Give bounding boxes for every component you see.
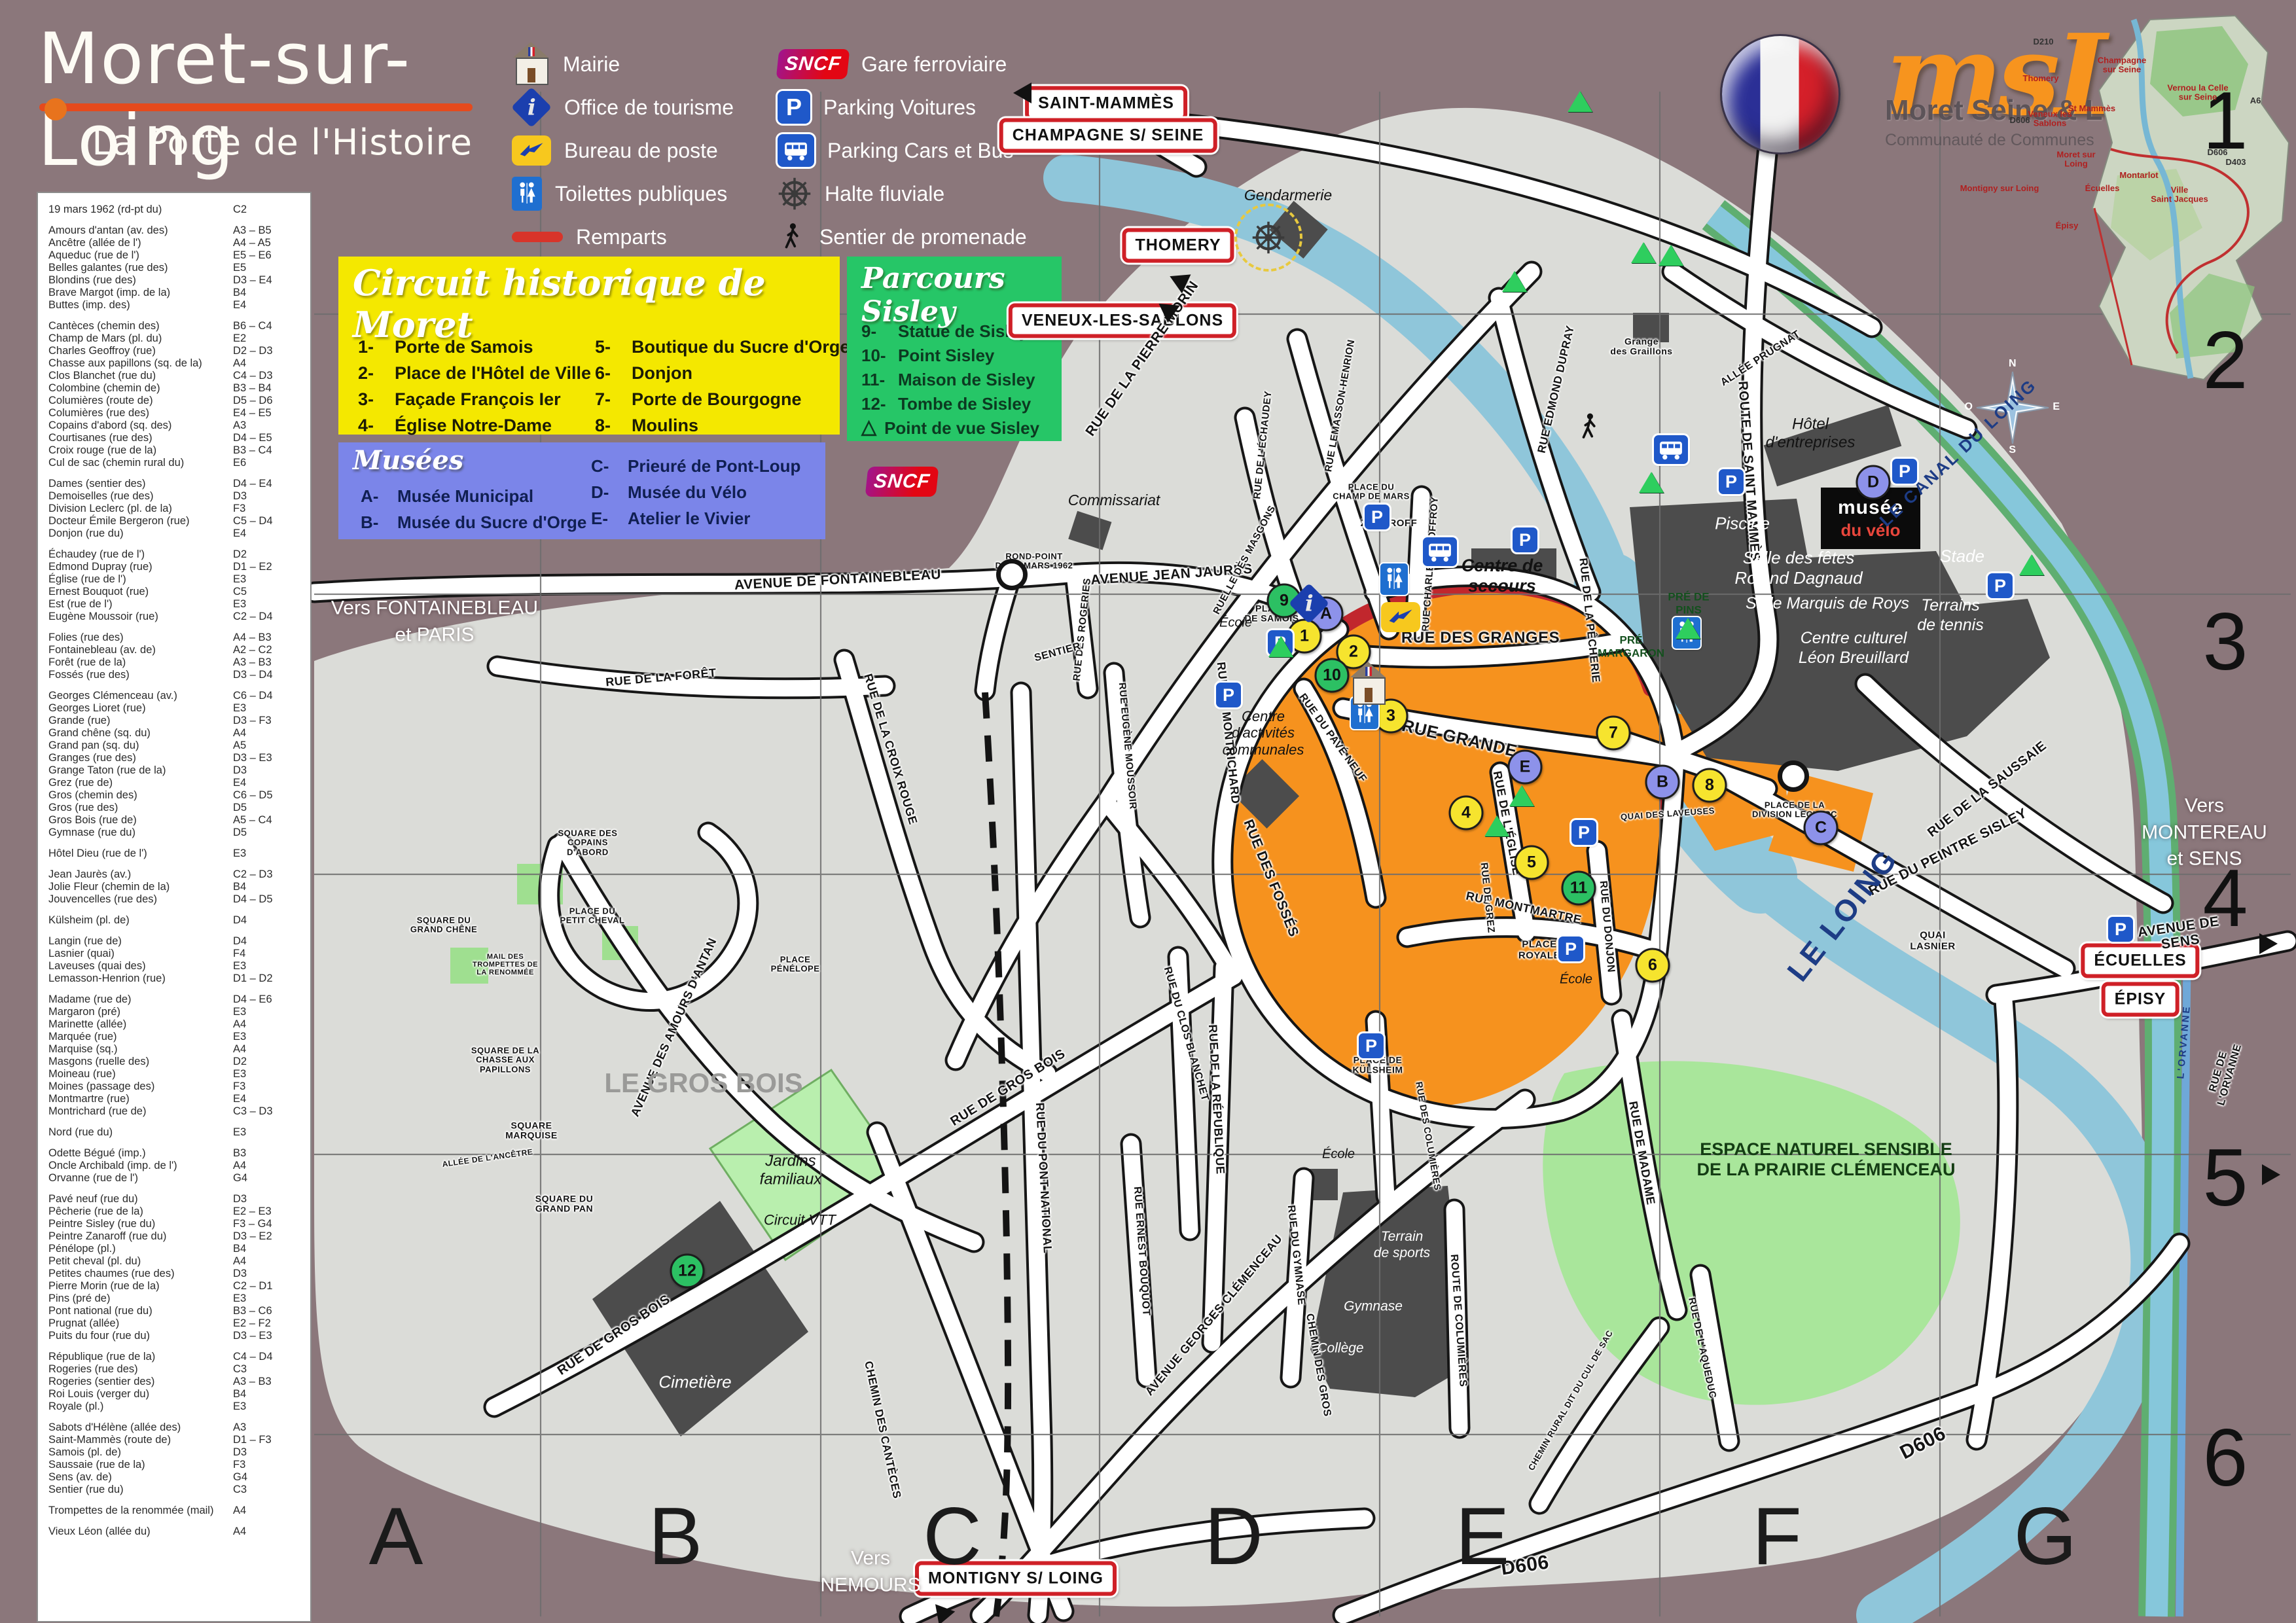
parking-icon: P	[1892, 459, 1917, 484]
halte-fluviale-ring	[1234, 204, 1302, 272]
index-row: Rogeries (sentier des)A3 – B3	[48, 1376, 304, 1388]
street-name: Edmond Dupray (rue)	[48, 561, 233, 573]
poi-marker-10: 10	[1315, 658, 1350, 693]
inset-label: D210	[2033, 37, 2053, 46]
street-grid-ref: C3	[233, 1484, 304, 1496]
index-row: Roi Louis (verger du)B4	[48, 1388, 304, 1400]
street-name: Grand chêne (sq. du)	[48, 727, 233, 740]
parking-bus-icon	[1654, 435, 1688, 464]
street-grid-ref: D1 – F3	[233, 1434, 304, 1446]
poi-number: E-	[591, 505, 620, 531]
street-name: Jean Jaurès (av.)	[48, 868, 233, 881]
street-grid-ref: D3	[233, 764, 304, 777]
poi-number: 7-	[595, 386, 624, 412]
musees-items-left: A-Musée MunicipalB-Musée du Sucre d'Orge	[361, 483, 586, 535]
street-name: Gros (chemin des)	[48, 789, 233, 802]
index-row: Marinette (allée)A4	[48, 1018, 304, 1031]
legend-item: PParking Voitures	[778, 90, 1027, 124]
index-row: Lasnier (quai)F4	[48, 948, 304, 960]
legend-item-label: Office de tourisme	[564, 96, 734, 120]
index-row: Nord (rue du)E3	[48, 1126, 304, 1139]
street-name: Sentier (rue du)	[48, 1484, 233, 1496]
halte-icon	[778, 177, 812, 211]
street-grid-ref: A4	[233, 357, 304, 370]
street-grid-ref: C5 – D4	[233, 515, 304, 527]
circuit-items-left: 1-Porte de Samois2-Place de l'Hôtel de V…	[358, 334, 591, 438]
index-row: 19 mars 1962 (rd-pt du)C2	[48, 204, 304, 216]
street-grid-ref: A4	[233, 1505, 304, 1517]
street-name: Roi Louis (verger du)	[48, 1388, 233, 1400]
index-row: Courtisanes (rue des)D4 – E5	[48, 432, 304, 444]
poi-label: Point Sisley	[898, 344, 994, 368]
street-name: Laveuses (quai des)	[48, 960, 233, 972]
index-row: Pénélope (pl.)B4	[48, 1243, 304, 1255]
poi-number: B-	[361, 509, 389, 535]
legend-item: Bureau de poste	[512, 134, 734, 168]
street-grid-ref: E2	[233, 332, 304, 345]
street-grid-ref: A4	[233, 1018, 304, 1031]
street-name: Peintre Sisley (rue du)	[48, 1218, 233, 1230]
street-grid-ref: G4	[233, 1471, 304, 1484]
index-row: Copains d'abord (sq. des)A3	[48, 419, 304, 432]
street-grid-ref: D3	[233, 490, 304, 503]
index-row: Sentier (rue du)C3	[48, 1484, 304, 1496]
street-name: Chasse aux papillons (sq. de la)	[48, 357, 233, 370]
sisley-viewpoint-icon	[1631, 242, 1656, 263]
index-row: Puits du four (rue du)D3 – E3	[48, 1330, 304, 1342]
circuit-box-title: Circuit historique de Moret	[338, 257, 840, 346]
index-row: Pierre Morin (rue de la)C2 – D1	[48, 1280, 304, 1293]
street-grid-ref: A3 – B5	[233, 224, 304, 237]
town-sign: CHAMPAGNE S/ SEINE	[999, 118, 1217, 153]
index-row: Champ de Mars (pl. du)E2	[48, 332, 304, 345]
index-row: Belles galantes (rue des)E5	[48, 262, 304, 274]
index-row: Rogeries (rue des)C3	[48, 1363, 304, 1376]
street-name: Marquée (rue)	[48, 1031, 233, 1043]
legend-column-1: MairieiOffice de tourismeBureau de poste…	[512, 47, 734, 254]
index-row: Cul de sac (chemin rural du)E6	[48, 457, 304, 469]
street-grid-ref: A4 – B3	[233, 632, 304, 644]
street-label: MAIL DES TROMPETTES DE LA RENOMMÉE	[473, 953, 538, 976]
poi-number: 11-	[861, 368, 890, 392]
street-name: Colombine (chemin de)	[48, 382, 233, 395]
index-row: Aqueduc (rue de l')E5 – E6	[48, 249, 304, 262]
street-grid-ref: E3	[233, 1006, 304, 1018]
index-row: Petit cheval (pl. du)A4	[48, 1255, 304, 1268]
street-name: Margaron (pré)	[48, 1006, 233, 1018]
index-row: Charles Geoffroy (rue)D2 – D3	[48, 345, 304, 357]
place-label: Gendarmerie	[1244, 187, 1332, 204]
street-name: 19 mars 1962 (rd-pt du)	[48, 204, 233, 216]
poi-label: Porte de Samois	[395, 334, 533, 360]
index-row: Moineau (rue)E3	[48, 1068, 304, 1080]
legend-column-2: SNCFGare ferroviairePParking VoituresPar…	[778, 47, 1027, 254]
grid-letter-E: E	[1456, 1490, 1510, 1583]
parking-icon: P	[1571, 820, 1596, 845]
street-grid-ref: C2 – D3	[233, 868, 304, 881]
index-row: Grange Taton (rue de la)D3	[48, 764, 304, 777]
sisley-viewpoint-icon	[1639, 472, 1664, 493]
index-row: Hôtel Dieu (rue de l')E3	[48, 847, 304, 860]
street-label: SQUARE DU GRAND PAN	[535, 1194, 594, 1215]
inset-label: D606	[2009, 116, 2030, 125]
street-name: Pavé neuf (rue du)	[48, 1193, 233, 1205]
street-label: QUAI LASNIER	[1910, 931, 1955, 952]
post-icon	[512, 135, 551, 166]
street-grid-ref: E4	[233, 527, 304, 540]
index-row: Gros (rue des)D5	[48, 802, 304, 814]
street-name: Nord (rue du)	[48, 1126, 233, 1139]
street-name: Madame (rue de)	[48, 993, 233, 1006]
town-sign: ÉPISY	[2102, 982, 2179, 1017]
map-mairie-icon	[1349, 666, 1387, 702]
parking-icon: P	[1513, 527, 1537, 552]
street-name: Fontainebleau (av. de)	[48, 644, 233, 656]
street-label: SQUARE MARQUISE	[505, 1121, 557, 1141]
index-row: Division Leclerc (pl. de la)F3	[48, 503, 304, 515]
index-group: Madame (rue de)D4 – E6Margaron (pré)E3Ma…	[48, 993, 304, 1118]
inset-label: D403	[2225, 158, 2246, 167]
street-grid-ref: F4	[233, 948, 304, 960]
index-row: Trompettes de la renommée (mail)A4	[48, 1505, 304, 1517]
facility-label: Piscine	[1715, 513, 1770, 533]
index-group: Vieux Léon (allée du)A4	[48, 1525, 304, 1538]
street-name: Grand pan (sq. du)	[48, 740, 233, 752]
poi-marker-4: 4	[1449, 796, 1484, 830]
street-name: Pins (pré de)	[48, 1293, 233, 1305]
poi-list-item: D-Musée du Vélo	[591, 479, 800, 505]
street-grid-ref: E2 – F2	[233, 1317, 304, 1330]
index-row: Eugène Moussoir (rue)C2 – D4	[48, 611, 304, 623]
street-grid-ref: D2 – D3	[233, 345, 304, 357]
poi-number: 3-	[358, 386, 387, 412]
moret-sur-loing-map-poster: Moret-sur-Loing La Porte de l'Histoire M…	[0, 0, 2296, 1623]
direction-label: Vers FONTAINEBLEAU et PARIS	[331, 596, 538, 649]
street-grid-ref: D3 – E4	[233, 274, 304, 287]
parking-icon: P	[1988, 573, 2013, 598]
index-row: Docteur Émile Bergeron (rue)C5 – D4	[48, 515, 304, 527]
index-group: Amours d'antan (av. des)A3 – B5Ancêtre (…	[48, 224, 304, 312]
facility-label: Salle Marquis de Roys	[1746, 594, 1909, 613]
street-grid-ref: D3	[233, 1193, 304, 1205]
street-name: Charles Geoffroy (rue)	[48, 345, 233, 357]
street-grid-ref: D3 – E2	[233, 1230, 304, 1243]
poi-label: Porte de Bourgogne	[632, 386, 802, 412]
street-name: Granges (rue des)	[48, 752, 233, 764]
street-grid-ref: E4	[233, 777, 304, 789]
street-name: Aqueduc (rue de l')	[48, 249, 233, 262]
french-flag-icon	[1720, 34, 1840, 154]
grid-letter-G: G	[2014, 1490, 2077, 1583]
poi-number: 10-	[861, 344, 890, 368]
parking-icon: P	[1359, 1033, 1384, 1058]
street-grid-ref: E3	[233, 598, 304, 611]
poi-list-item: 1-Porte de Samois	[358, 334, 591, 360]
street-name: Langin (rue de)	[48, 935, 233, 948]
poi-number: 1-	[358, 334, 387, 360]
poi-label: Façade François Ier	[395, 386, 561, 412]
poi-label: Moulins	[632, 412, 698, 438]
street-label: SQUARE DE LA CHASSE AUX PAPILLONS	[471, 1046, 539, 1075]
legend-item: iOffice de tourisme	[512, 90, 734, 124]
index-row: Dames (sentier des)D4 – E4	[48, 478, 304, 490]
index-row: Donjon (rue du)E4	[48, 527, 304, 540]
street-name: Belles galantes (rue des)	[48, 262, 233, 274]
toilets-icon	[1380, 563, 1408, 595]
street-grid-ref: A3 – B3	[233, 656, 304, 669]
street-name: Pénélope (pl.)	[48, 1243, 233, 1255]
poi-number: 4-	[358, 412, 387, 438]
index-row: Petites chaumes (rue des)D3	[48, 1268, 304, 1280]
legend-item-label: Mairie	[563, 52, 620, 77]
town-sign: VENEUX-LES-SABLONS	[1009, 304, 1236, 338]
street-name: Division Leclerc (pl. de la)	[48, 503, 233, 515]
index-row: Columières (route de)D5 – D6	[48, 395, 304, 407]
index-group: Trompettes de la renommée (mail)A4	[48, 1505, 304, 1517]
viewpoint-triangle-icon: △	[861, 416, 876, 440]
street-name: Amours d'antan (av. des)	[48, 224, 233, 237]
index-row: Vieux Léon (allée du)A4	[48, 1525, 304, 1538]
poi-label: Donjon	[632, 360, 692, 386]
mairie-icon	[1349, 666, 1387, 702]
place-label: École	[1560, 972, 1592, 988]
inset-label: Vernou la Celle sur Seine	[2167, 84, 2228, 103]
velo-logo-line2: du vélo	[1821, 520, 1920, 541]
street-grid-ref: D4	[233, 914, 304, 927]
street-grid-ref: C5	[233, 586, 304, 598]
street-grid-ref: D3 – F3	[233, 715, 304, 727]
walker-icon	[778, 219, 806, 255]
index-row: Saussaie (rue de la)F3	[48, 1459, 304, 1471]
tourism-icon: i	[1289, 583, 1329, 624]
street-name: Cantèces (chemin des)	[48, 320, 233, 332]
street-grid-ref: E3	[233, 1126, 304, 1139]
street-grid-ref: A2 – C2	[233, 644, 304, 656]
poi-marker-B: B	[1645, 765, 1680, 800]
index-row: Fontainebleau (av. de)A2 – C2	[48, 644, 304, 656]
place-label: Hôtel d'entreprises	[1766, 415, 1856, 451]
index-group: Jean Jaurès (av.)C2 – D3Jolie Fleur (che…	[48, 868, 304, 906]
direction-arrow-icon	[2259, 933, 2278, 954]
parking-icon: P	[778, 91, 810, 124]
index-row: Granges (rue des)D3 – E3	[48, 752, 304, 764]
poi-marker-11: 11	[1562, 871, 1596, 906]
poi-marker-6: 6	[1636, 948, 1670, 983]
index-row: Grande (rue)D3 – F3	[48, 715, 304, 727]
street-name: Buttes (imp. des)	[48, 299, 233, 312]
street-name: Sabots d'Hélène (allée des)	[48, 1421, 233, 1434]
legend-item-label: Remparts	[576, 225, 667, 249]
poi-list-item: 2-Place de l'Hôtel de Ville	[358, 360, 591, 386]
index-row: Échaudey (rue de l')D2	[48, 548, 304, 561]
street-name: Croix rouge (rue de la)	[48, 444, 233, 457]
street-grid-ref: E6	[233, 457, 304, 469]
sncf-icon: SNCF	[776, 49, 850, 79]
index-group: Langin (rue de)D4Lasnier (quai)F4Laveuse…	[48, 935, 304, 985]
poi-marker-5: 5	[1515, 846, 1549, 880]
place-label: Circuit VTT	[764, 1211, 836, 1228]
street-name: Odette Bégué (imp.)	[48, 1147, 233, 1160]
street-name: Columières (route de)	[48, 395, 233, 407]
street-label: PLACE PÉNÉLOPE	[771, 955, 820, 974]
place-label: Centre d'activités communales	[1223, 708, 1304, 758]
street-grid-ref: A4	[233, 1043, 304, 1056]
street-name: Marinette (allée)	[48, 1018, 233, 1031]
index-row: Odette Bégué (imp.)B3	[48, 1147, 304, 1160]
street-name: Montmartre (rue)	[48, 1093, 233, 1105]
street-name: Georges Lioret (rue)	[48, 702, 233, 715]
street-grid-ref: F3	[233, 1459, 304, 1471]
legend-item-label: Toilettes publiques	[555, 182, 727, 206]
street-name: Marquise (sq.)	[48, 1043, 233, 1056]
street-name: Clos Blanchet (rue du)	[48, 370, 233, 382]
street-grid-ref: E3	[233, 1293, 304, 1305]
street-name: Gros Bois (rue de)	[48, 814, 233, 827]
street-grid-ref: D3	[233, 1446, 304, 1459]
legend-item: Toilettes publiques	[512, 177, 734, 211]
street-name: Gymnase (rue du)	[48, 827, 233, 839]
street-grid-ref: A5 – C4	[233, 814, 304, 827]
poi-number: 2-	[358, 360, 387, 386]
index-row: Colombine (chemin de)B3 – B4	[48, 382, 304, 395]
inset-label: Ville Saint Jacques	[2151, 186, 2208, 205]
street-grid-ref: C2 – D4	[233, 611, 304, 623]
index-row: Georges Clémenceau (av.)C6 – D4	[48, 690, 304, 702]
roundabout	[1778, 760, 1809, 792]
grid-letter-D: D	[1204, 1490, 1263, 1583]
facility-label: Centre culturel Léon Breuillard	[1799, 628, 1909, 668]
street-name: Samois (pl. de)	[48, 1446, 233, 1459]
street-name: Lemasson-Henrion (rue)	[48, 972, 233, 985]
index-row: Ernest Bouquot (rue)C5	[48, 586, 304, 598]
street-name: Rogeries (sentier des)	[48, 1376, 233, 1388]
street-grid-ref: C6 – D4	[233, 690, 304, 702]
circuit-historique-box: Circuit historique de Moret 1-Porte de S…	[338, 257, 840, 435]
street-grid-ref: D5	[233, 827, 304, 839]
street-name: Hôtel Dieu (rue de l')	[48, 847, 233, 860]
street-name: Peintre Zanaroff (rue du)	[48, 1230, 233, 1243]
map-tourism-icon: i	[1289, 586, 1329, 620]
index-row: Grand pan (sq. du)A5	[48, 740, 304, 752]
street-name: Cul de sac (chemin rural du)	[48, 457, 233, 469]
poi-list-item: 12-Tombe de Sisley	[861, 392, 1035, 416]
poi-list-item: 3-Façade François Ier	[358, 386, 591, 412]
index-group: Folies (rue des)A4 – B3Fontainebleau (av…	[48, 632, 304, 681]
index-row: Gros (chemin des)C6 – D5	[48, 789, 304, 802]
street-grid-ref: D3 – E3	[233, 752, 304, 764]
poi-label: Église Notre-Dame	[395, 412, 552, 438]
street-name: Trompettes de la renommée (mail)	[48, 1505, 233, 1517]
index-row: Amours d'antan (av. des)A3 – B5	[48, 224, 304, 237]
legend-item-label: Halte fluviale	[825, 182, 944, 206]
musees-items-right: C-Prieuré de Pont-LoupD-Musée du VéloE-A…	[591, 453, 800, 531]
street-name: Ernest Bouquot (rue)	[48, 586, 233, 598]
poi-list-item: 6-Donjon	[595, 360, 850, 386]
sncf-icon: SNCF	[865, 467, 939, 497]
street-grid-ref: B3	[233, 1147, 304, 1160]
street-name: Donjon (rue du)	[48, 527, 233, 540]
inset-label: D606	[2207, 148, 2227, 157]
street-grid-ref: B4	[233, 287, 304, 299]
street-grid-ref: E4	[233, 299, 304, 312]
poi-marker-8: 8	[1693, 768, 1727, 803]
street-name: Petites chaumes (rue des)	[48, 1268, 233, 1280]
street-grid-ref: D4 – D5	[233, 893, 304, 906]
street-name: Gros (rue des)	[48, 802, 233, 814]
poi-marker-12: 12	[670, 1254, 705, 1289]
street-grid-ref: D4 – E5	[233, 432, 304, 444]
index-row: Jolie Fleur (chemin de la)B4	[48, 881, 304, 893]
index-row: Edmond Dupray (rue)D1 – E2	[48, 561, 304, 573]
street-grid-ref: C4 – D4	[233, 1351, 304, 1363]
inset-label: Épisy	[2056, 221, 2079, 230]
legend-item: Halte fluviale	[778, 177, 1027, 211]
poi-list-item: C-Prieuré de Pont-Loup	[591, 453, 800, 479]
place-label: Jardins familiaux	[760, 1152, 822, 1188]
street-grid-ref: A5	[233, 740, 304, 752]
street-grid-ref: E3	[233, 573, 304, 586]
index-row: Külsheim (pl. de)D4	[48, 914, 304, 927]
street-name: Rogeries (rue des)	[48, 1363, 233, 1376]
index-row: Fossés (rue des)D3 – D4	[48, 669, 304, 681]
street-name: Lasnier (quai)	[48, 948, 233, 960]
area-label: ESPACE NATUREL SENSIBLE DE LA PRAIRIE CL…	[1696, 1139, 1955, 1180]
street-grid-ref: D1 – E2	[233, 561, 304, 573]
legend-item-label: Gare ferroviaire	[861, 52, 1007, 77]
street-name: Blondins (rue des)	[48, 274, 233, 287]
index-row: Clos Blanchet (rue du)C4 – D3	[48, 370, 304, 382]
inset-label: A6	[2250, 96, 2261, 105]
street-grid-ref: E3	[233, 1031, 304, 1043]
street-label: RUE DES GRANGES	[1401, 630, 1560, 647]
town-sign: THOMERY	[1122, 228, 1234, 263]
street-grid-ref: B3 – C6	[233, 1305, 304, 1317]
index-row: Columières (rue des)E4 – E5	[48, 407, 304, 419]
poi-label: Atelier le Vivier	[628, 505, 750, 531]
poi-marker-7: 7	[1596, 716, 1631, 751]
street-name: Dames (sentier des)	[48, 478, 233, 490]
index-row: Marquise (sq.)A4	[48, 1043, 304, 1056]
street-grid-ref: E5 – E6	[233, 249, 304, 262]
index-row: Madame (rue de)D4 – E6	[48, 993, 304, 1006]
street-name: Pêcherie (rue de la)	[48, 1205, 233, 1218]
index-row: Jouvencelles (rue des)D4 – D5	[48, 893, 304, 906]
street-grid-ref: D1 – D2	[233, 972, 304, 985]
musees-box: Musées A-Musée MunicipalB-Musée du Sucre…	[338, 442, 825, 539]
index-row: Pavé neuf (rue du)D3	[48, 1193, 304, 1205]
grid-letter-B: B	[649, 1490, 703, 1583]
street-name: Moineau (rue)	[48, 1068, 233, 1080]
street-grid-ref: B4	[233, 1243, 304, 1255]
parking-icon: P	[1365, 505, 1390, 529]
street-name: Pierre Morin (rue de la)	[48, 1280, 233, 1293]
index-row: République (rue de la)C4 – D4	[48, 1351, 304, 1363]
index-group: Dames (sentier des)D4 – E4Demoiselles (r…	[48, 478, 304, 540]
index-row: Marquée (rue)E3	[48, 1031, 304, 1043]
grid-number-3: 3	[2203, 596, 2248, 688]
street-grid-ref: E4 – E5	[233, 407, 304, 419]
street-name: Royale (pl.)	[48, 1400, 233, 1413]
place-label: École	[1219, 616, 1252, 631]
index-row: Gros Bois (rue de)A5 – C4	[48, 814, 304, 827]
street-grid-ref: E4	[233, 1093, 304, 1105]
parking-icon: P	[1558, 936, 1583, 961]
poi-label: Musée du Vélo	[628, 479, 747, 505]
street-grid-ref: E2 – E3	[233, 1205, 304, 1218]
index-group: Külsheim (pl. de)D4	[48, 914, 304, 927]
index-row: Église (rue de l')E3	[48, 573, 304, 586]
street-grid-ref: B3 – B4	[233, 382, 304, 395]
